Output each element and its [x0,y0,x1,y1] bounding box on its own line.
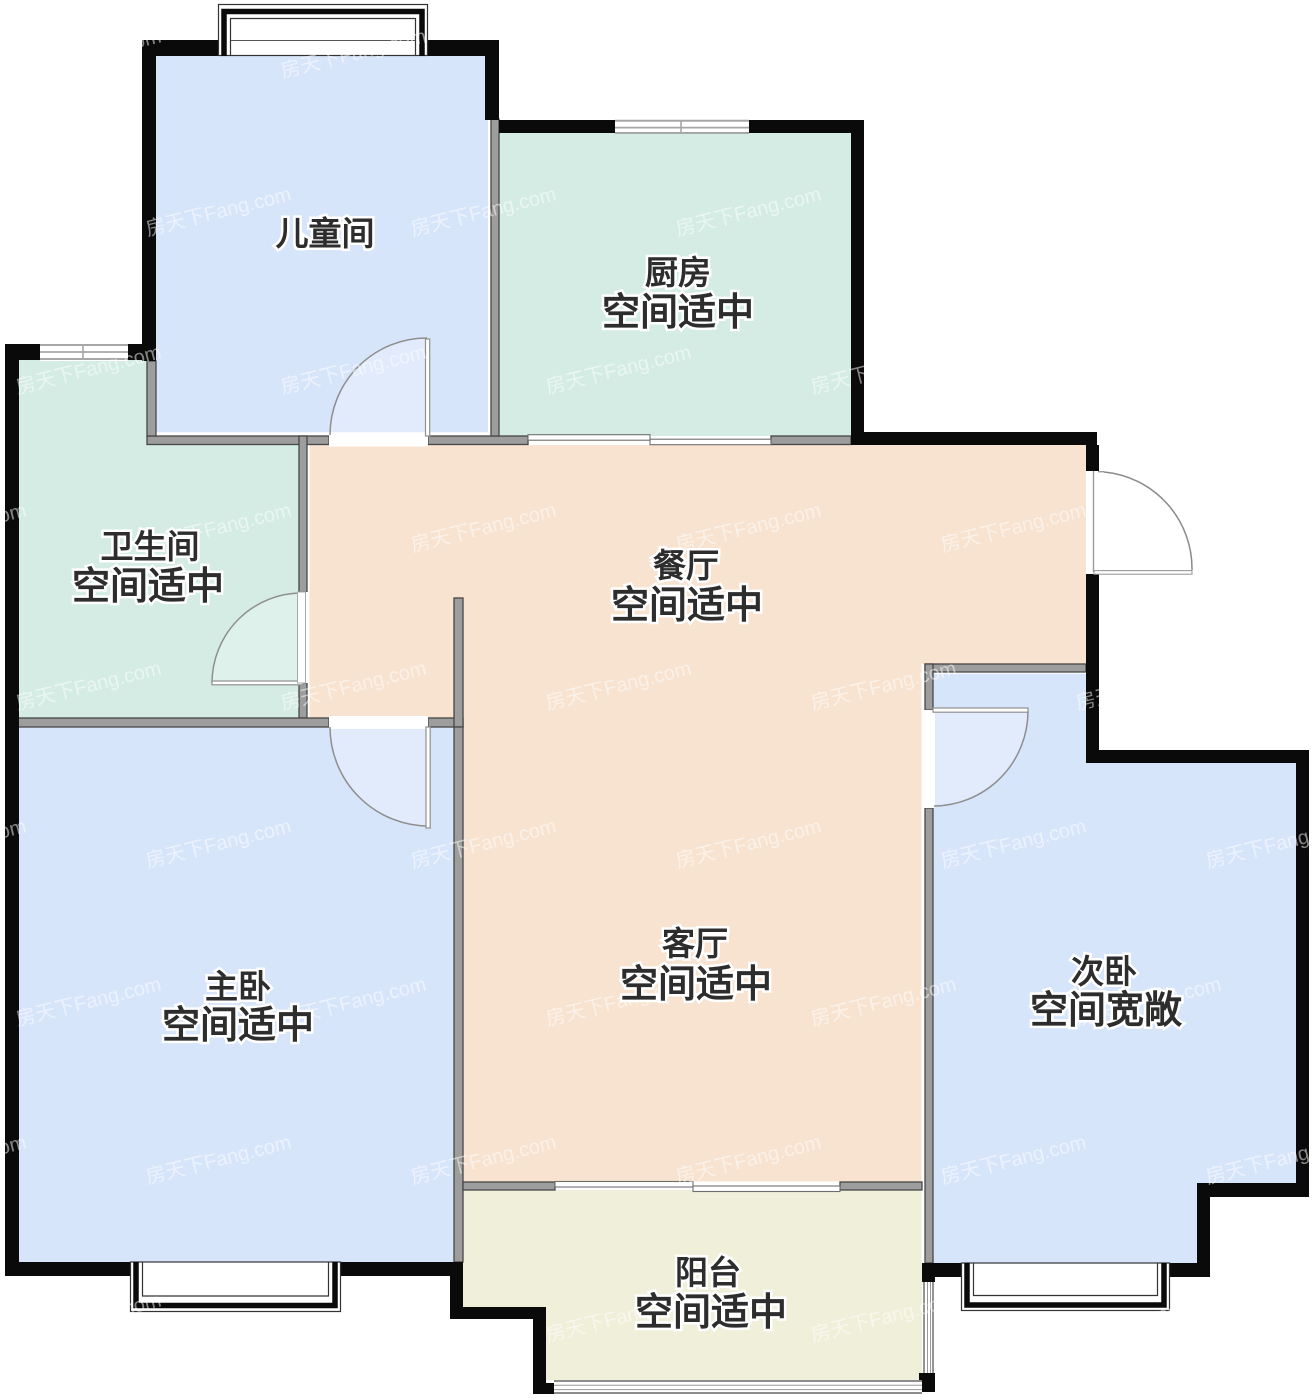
svg-text:次卧: 次卧 [1071,953,1137,990]
svg-text:客厅: 客厅 [662,925,728,962]
svg-text:空间适中: 空间适中 [620,964,772,1006]
svg-text:阳台: 阳台 [675,1254,741,1291]
svg-text:餐厅: 餐厅 [653,547,719,584]
svg-text:空间适中: 空间适中 [72,566,224,608]
svg-text:儿童间: 儿童间 [276,215,375,252]
svg-text:卫生间: 卫生间 [101,528,200,565]
svg-text:厨房: 厨房 [645,254,711,291]
svg-text:空间适中: 空间适中 [162,1005,314,1047]
svg-text:主卧: 主卧 [205,968,271,1005]
svg-text:空间适中: 空间适中 [611,585,763,627]
svg-text:空间宽敞: 空间宽敞 [1030,989,1183,1032]
svg-text:空间适中: 空间适中 [602,292,754,334]
svg-text:空间适中: 空间适中 [635,1292,787,1334]
